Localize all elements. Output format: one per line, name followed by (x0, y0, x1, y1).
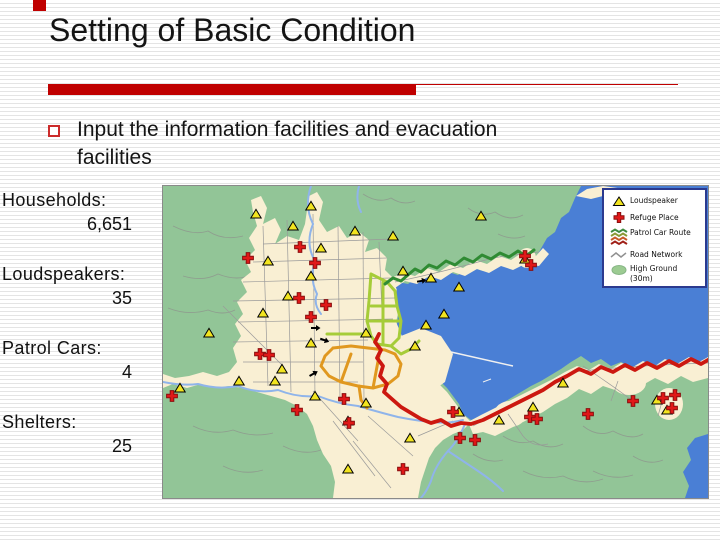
title-underline-bar (48, 84, 416, 95)
bullet-text: Input the information facilities and eva… (77, 116, 507, 172)
legend-label: Road Network (630, 250, 702, 260)
legend-label: High Ground (30m) (630, 264, 702, 284)
legend-label: Patrol Car Route (630, 228, 702, 238)
legend-label: Refuge Place (630, 213, 702, 223)
bullet-item: Input the information facilities and eva… (48, 116, 507, 172)
patrol-route-icon (608, 228, 630, 246)
legend-item-high-ground: High Ground (30m) (608, 264, 702, 284)
road-network-icon (608, 251, 630, 259)
stat-value: 4 (2, 362, 138, 383)
loudspeaker-triangle-icon (608, 195, 630, 207)
map-legend: Loudspeaker Refuge Place Patrol Car Rout… (602, 188, 707, 288)
page-title: Setting of Basic Condition (49, 12, 415, 49)
slide: { "slide": { "title": "Setting of Basic … (0, 0, 720, 540)
stat-loudspeakers: Loudspeakers: 35 (2, 264, 138, 309)
stat-value: 25 (2, 436, 138, 457)
template-corner-accent (33, 0, 46, 11)
bullet-square-icon (48, 125, 60, 137)
refuge-cross-icon (608, 211, 630, 224)
stat-value: 35 (2, 288, 138, 309)
legend-item-loudspeaker: Loudspeaker (608, 195, 702, 207)
stat-label: Households: (2, 190, 138, 211)
high-ground-icon (608, 264, 630, 276)
legend-label: Loudspeaker (630, 196, 702, 206)
legend-item-refuge-place: Refuge Place (608, 211, 702, 224)
title-underline-rule (416, 84, 678, 85)
legend-item-road-network: Road Network (608, 250, 702, 260)
stat-patrol-cars: Patrol Cars: 4 (2, 338, 138, 383)
statistics-list: Households: 6,651 Loudspeakers: 35 Patro… (2, 190, 138, 486)
stat-label: Patrol Cars: (2, 338, 138, 359)
stat-shelters: Shelters: 25 (2, 412, 138, 457)
stat-value: 6,651 (2, 214, 138, 235)
stat-households: Households: 6,651 (2, 190, 138, 235)
legend-item-patrol-route: Patrol Car Route (608, 228, 702, 246)
stat-label: Shelters: (2, 412, 138, 433)
stat-label: Loudspeakers: (2, 264, 138, 285)
evacuation-map: Loudspeaker Refuge Place Patrol Car Rout… (162, 185, 709, 499)
